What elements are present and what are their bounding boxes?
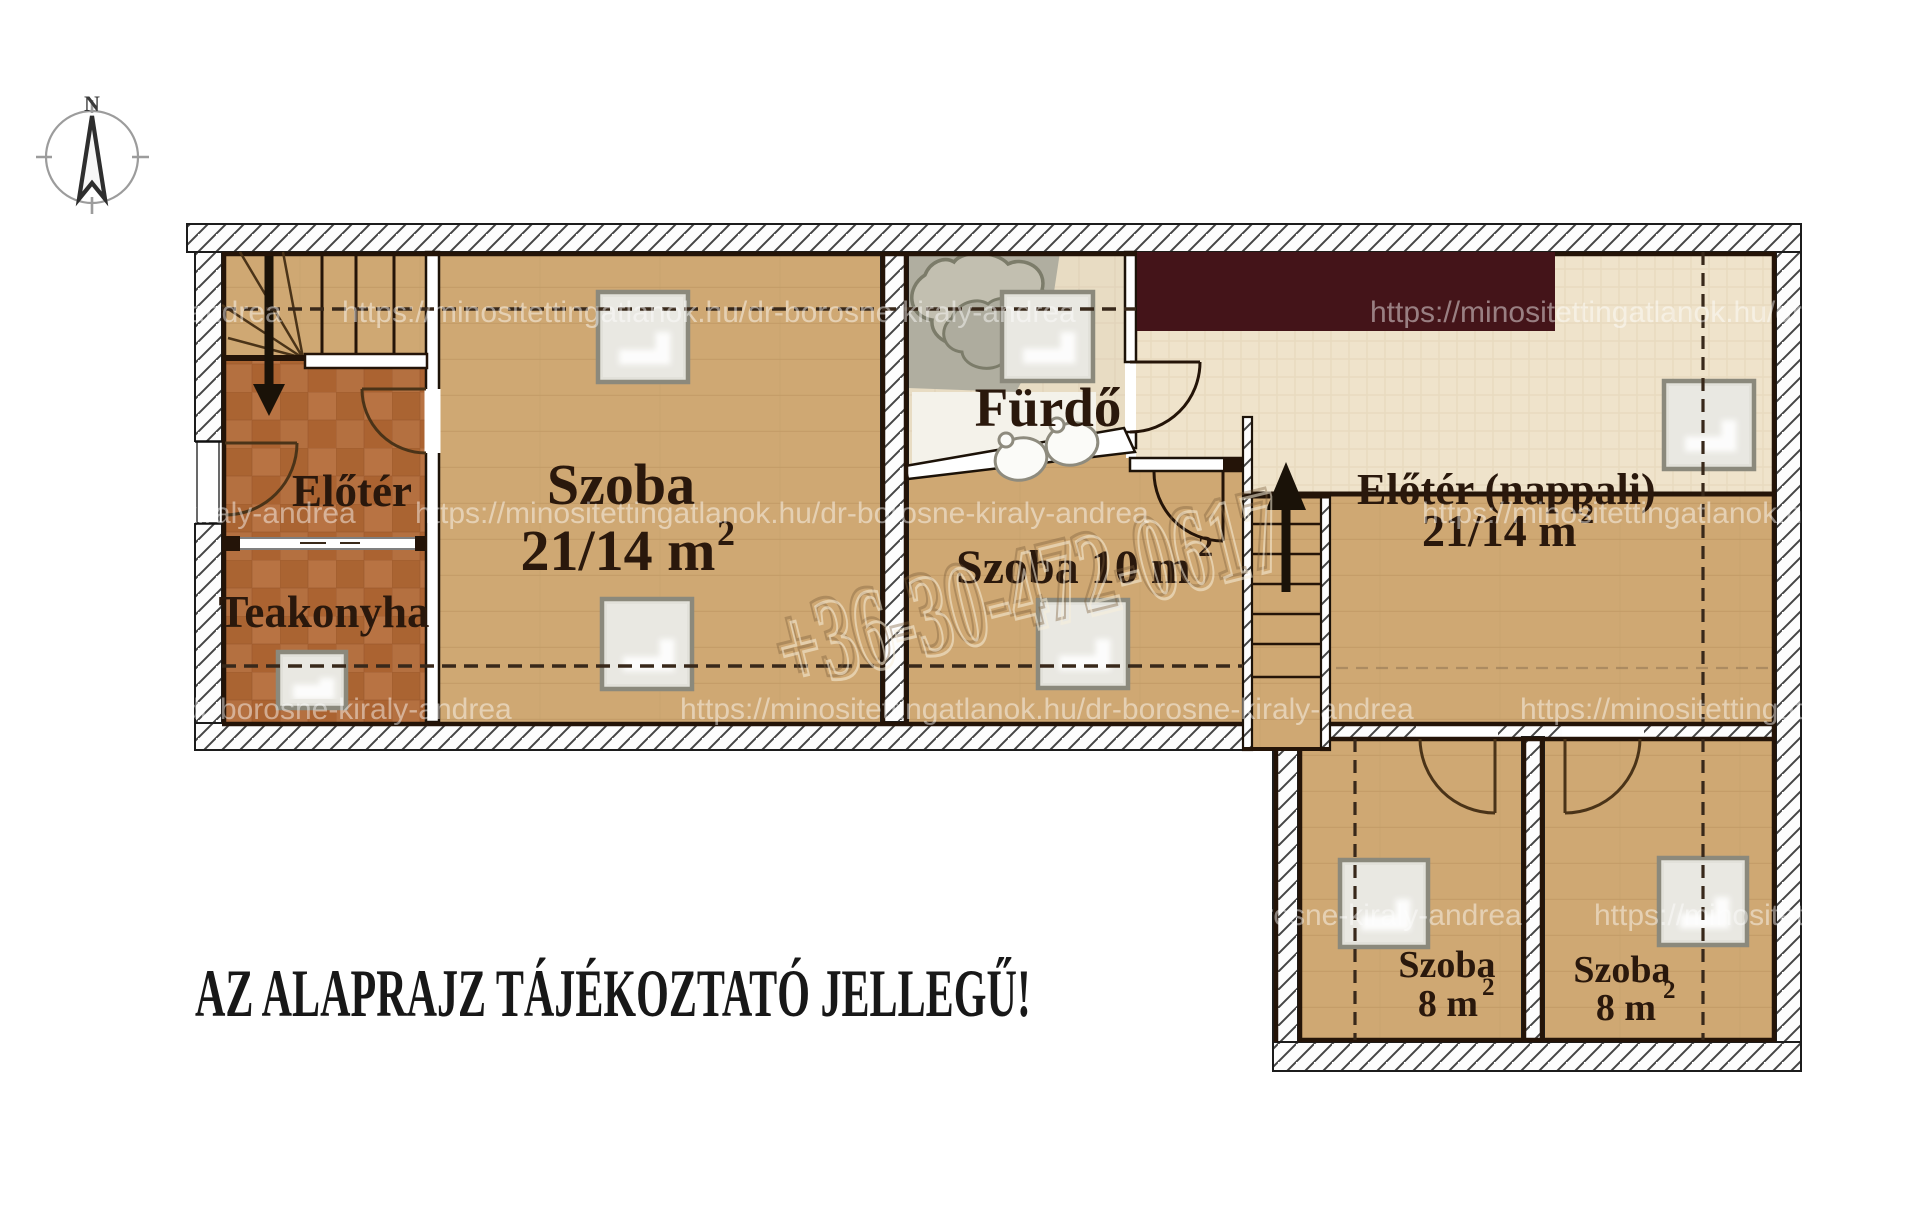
svg-text:Teakonyha: Teakonyha xyxy=(219,587,430,637)
svg-text:https://minositettingatlanok.h: https://minositettingatlanok.hu/dr-boros… xyxy=(788,899,1522,932)
svg-text:2: 2 xyxy=(1482,974,1495,1001)
svg-text:https://minositettingatlanok.h: https://minositettingatlanok.hu/dr-boros… xyxy=(342,296,1076,329)
svg-text:https://minositettingatlanok.h: https://minositettingatlanok.hu/dr-boros… xyxy=(1594,899,1920,932)
svg-text:https://minositettingatlanok.h: https://minositettingatlanok.hu/dr-boros… xyxy=(680,693,1414,726)
svg-text:https://minositettingatlanok.h: https://minositettingatlanok.hu/dr-boros… xyxy=(0,693,512,726)
svg-text:https://minositettingatlanok.h: https://minositettingatlanok.hu/dr-boros… xyxy=(415,497,1149,530)
svg-text:https://minositettingatlanok.h: https://minositettingatlanok.hu/dr-boros… xyxy=(0,497,356,530)
svg-text:AZ ALAPRAJZ TÁJÉKOZTATÓ JELLEG: AZ ALAPRAJZ TÁJÉKOZTATÓ JELLEGŰ! xyxy=(195,956,1031,1032)
svg-text:N: N xyxy=(84,91,100,116)
svg-text:https://minositettingatlanok.h: https://minositettingatlanok.hu/dr-boros… xyxy=(1520,693,1920,726)
svg-text:https://minositettingatlanok.h: https://minositettingatlanok.hu/dr-boros… xyxy=(0,899,515,932)
svg-text:8 m: 8 m xyxy=(1596,987,1656,1029)
svg-text:https://minositettingatlanok.h: https://minositettingatlanok.hu/dr-boros… xyxy=(1422,497,1920,530)
svg-text:https://minositettingatlanok.h: https://minositettingatlanok.hu/dr-boros… xyxy=(1370,296,1920,329)
svg-text:https://minositettingatlanok.h: https://minositettingatlanok.hu/dr-boros… xyxy=(0,296,282,329)
svg-text:8 m: 8 m xyxy=(1418,983,1478,1025)
svg-text:Fürdő: Fürdő xyxy=(975,377,1122,438)
svg-text:2: 2 xyxy=(1663,977,1676,1004)
svg-text:Szoba: Szoba xyxy=(1398,944,1495,986)
svg-text:Szoba: Szoba xyxy=(1573,949,1670,991)
